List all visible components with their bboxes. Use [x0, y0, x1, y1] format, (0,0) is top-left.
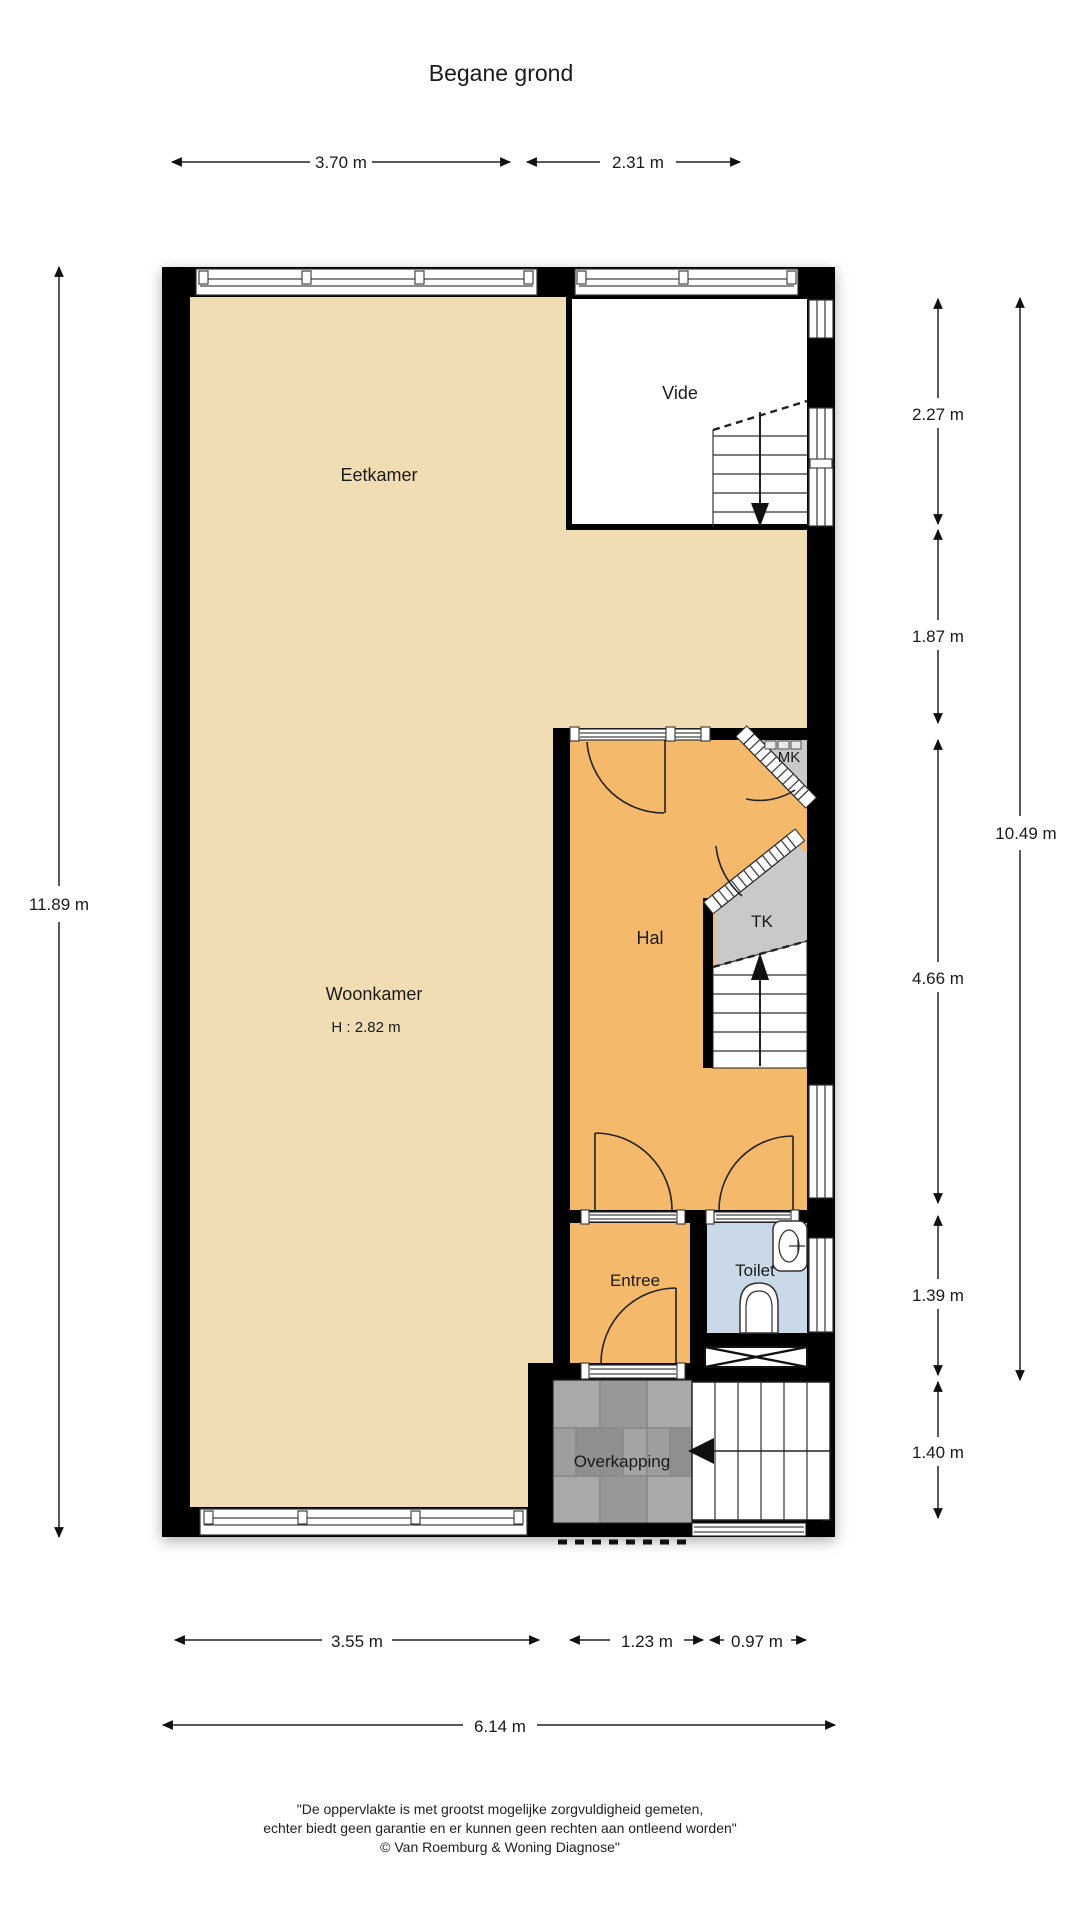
- window-hal-top: [570, 727, 710, 741]
- dim-label: 3.55 m: [331, 1632, 383, 1651]
- entrance-steps: [688, 1382, 830, 1520]
- dim-label: 1.40 m: [912, 1443, 964, 1462]
- window-top-left: [196, 269, 537, 295]
- label-mk: MK: [778, 749, 801, 766]
- floor-plan-page: Begane grond Eetkamer Vide Woonkamer H :…: [0, 0, 1080, 1920]
- label-toilet: Toilet: [735, 1261, 775, 1280]
- dimension-bottom-total: 6.14 m: [163, 1717, 835, 1736]
- dim-label: 2.27 m: [912, 405, 964, 424]
- label-vide: Vide: [662, 383, 698, 403]
- dimension-left-total: 11.89 m: [29, 267, 89, 1537]
- floor-plan-canvas: Begane grond Eetkamer Vide Woonkamer H :…: [0, 0, 1080, 1920]
- mk-meter-icon: [765, 741, 801, 749]
- dimension-right-3: 4.66 m: [912, 740, 964, 1203]
- label-tk: TK: [751, 912, 773, 931]
- toilet-bowl: [740, 1283, 778, 1333]
- dimension-right-2: 1.87 m: [912, 530, 964, 723]
- dim-label: 1.39 m: [912, 1286, 964, 1305]
- window-bottom: [200, 1509, 527, 1535]
- footer-line-1: "De oppervlakte is met grootst mogelijke…: [297, 1801, 704, 1817]
- dimension-right-4: 1.39 m: [912, 1216, 964, 1375]
- entrance-threshold: [692, 1520, 822, 1537]
- label-woonkamer-height: H : 2.82 m: [331, 1019, 400, 1036]
- window-right-4: [809, 1238, 833, 1332]
- dim-label: 6.14 m: [474, 1717, 526, 1736]
- window-right-2: [809, 408, 833, 526]
- label-entree: Entree: [610, 1271, 660, 1290]
- dim-label: 4.66 m: [912, 969, 964, 988]
- front-door-opening: [581, 1363, 685, 1379]
- dimension-right-5: 1.40 m: [912, 1382, 964, 1518]
- dim-label: 10.49 m: [995, 824, 1056, 843]
- dimension-right-1: 2.27 m: [912, 299, 964, 524]
- stair-wall: [703, 898, 713, 1068]
- dim-label: 0.97 m: [731, 1632, 783, 1651]
- footer-line-3: © Van Roemburg & Woning Diagnose": [380, 1839, 620, 1855]
- label-hal: Hal: [636, 928, 663, 948]
- dimension-top-w1: 3.70 m: [172, 153, 510, 172]
- dimension-bottom-1: 3.55 m: [175, 1632, 539, 1651]
- footer-line-2: echter biedt geen garantie en er kunnen …: [263, 1820, 737, 1836]
- dimension-bottom-3: 0.97 m: [710, 1632, 806, 1651]
- window-right-1: [809, 300, 833, 338]
- dimension-bottom-2: 1.23 m: [570, 1632, 703, 1651]
- dimension-right-total: 10.49 m: [995, 298, 1056, 1380]
- plan: [162, 267, 835, 1542]
- crawl-hatch: [705, 1347, 807, 1367]
- window-top-right: [575, 269, 798, 295]
- page-title: Begane grond: [429, 60, 574, 86]
- dim-label: 1.23 m: [621, 1632, 673, 1651]
- label-woonkamer: Woonkamer: [326, 984, 423, 1004]
- label-overkapping: Overkapping: [574, 1452, 670, 1471]
- room-entree-floor: [570, 1223, 690, 1363]
- dim-label: 3.70 m: [315, 153, 367, 172]
- footer-disclaimer: "De oppervlakte is met grootst mogelijke…: [263, 1801, 737, 1855]
- window-right-3: [809, 1085, 833, 1198]
- dim-label: 11.89 m: [29, 895, 89, 914]
- label-eetkamer: Eetkamer: [340, 465, 417, 485]
- door-opening-hal-entree: [581, 1210, 685, 1224]
- dim-label: 2.31 m: [612, 153, 664, 172]
- washbasin: [773, 1221, 807, 1271]
- dimension-top-w2: 2.31 m: [527, 153, 740, 172]
- dim-label: 1.87 m: [912, 627, 964, 646]
